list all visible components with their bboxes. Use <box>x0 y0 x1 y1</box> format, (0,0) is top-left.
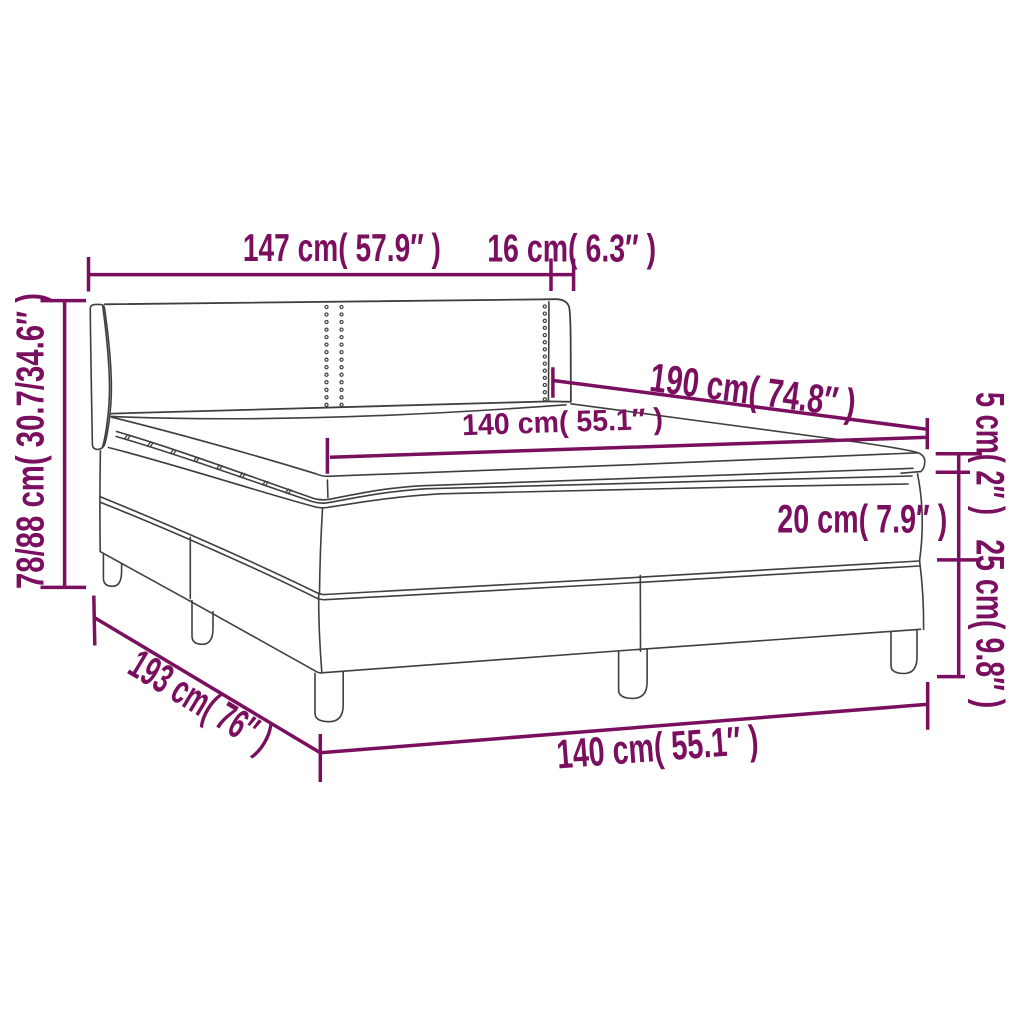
svg-text:5 cm( 2″ ): 5 cm( 2″ ) <box>968 392 1012 515</box>
svg-text:78/88 cm( 30.7/34.6″ ): 78/88 cm( 30.7/34.6″ ) <box>9 293 52 589</box>
svg-text:25 cm( 9.8″ ): 25 cm( 9.8″ ) <box>968 539 1012 708</box>
svg-text:140 cm( 55.1″ ): 140 cm( 55.1″ ) <box>462 403 664 443</box>
svg-text:147 cm( 57.9″ ): 147 cm( 57.9″ ) <box>243 227 441 270</box>
svg-text:20 cm( 7.9″ ): 20 cm( 7.9″ ) <box>777 498 947 542</box>
svg-text:16 cm( 6.3″ ): 16 cm( 6.3″ ) <box>487 227 656 270</box>
